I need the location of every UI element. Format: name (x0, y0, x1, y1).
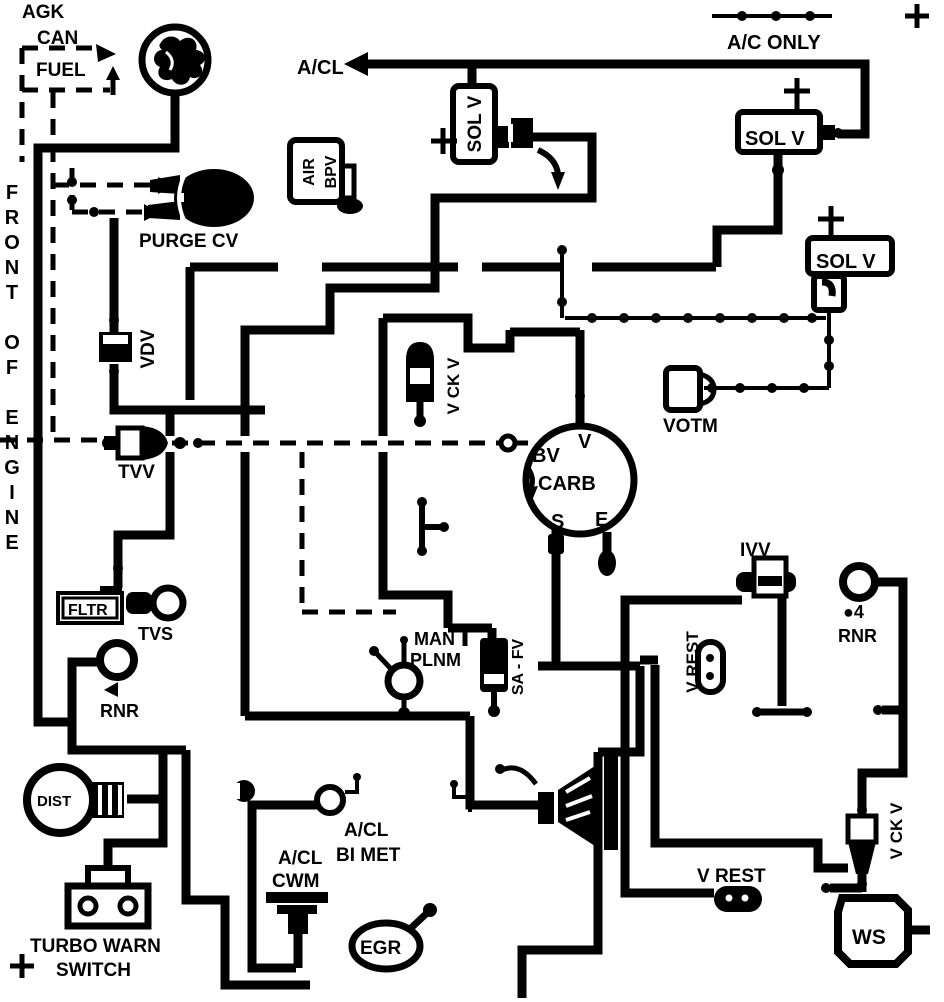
t-fitting-icon (422, 505, 441, 548)
turbo-warn-label: TURBO WARN (30, 936, 161, 957)
sol-v-ac-label: SOL V (745, 128, 805, 150)
acl-bimet-1-label: A/CL (344, 820, 389, 841)
acl-arrowhead-icon (344, 52, 368, 76)
sol-v-carb-label: SOL V (465, 95, 486, 152)
egr-icon (352, 903, 437, 969)
purge-cv-icon (148, 169, 254, 227)
bpv-label: BPV (323, 155, 340, 188)
v-ck-v-right-label: V CK V (887, 802, 906, 859)
switch-label: SWITCH (56, 960, 131, 981)
acl-cwm-1-label: A/CL (278, 848, 323, 869)
e-label: E (595, 509, 608, 531)
hose-right-feed (655, 665, 848, 868)
ws-label: WS (852, 926, 886, 949)
hose-s-zig (598, 666, 640, 752)
hose-solv2-stem (717, 152, 778, 267)
sol-v-votm (808, 238, 892, 310)
agk-label: AGK (22, 2, 65, 23)
rnr-4-bullet-label: ●4 (843, 602, 864, 622)
carb-icon (501, 426, 634, 576)
hose-rnr4-line (862, 582, 903, 814)
arrow-fuel-t (106, 66, 120, 80)
canister-icon (142, 27, 208, 93)
sa-fv-icon (480, 638, 508, 708)
tvs-label: TVS (138, 624, 173, 644)
plus-icon (818, 206, 844, 238)
plus-icon (784, 78, 810, 112)
beaded-hoses (562, 16, 832, 388)
egr-label: EGR (360, 938, 401, 959)
v-rest-bottom-label: V REST (697, 866, 766, 887)
hose-vck-loop (383, 318, 510, 348)
tvv-icon (104, 426, 168, 460)
sa-fv-label: SA - FV (510, 639, 527, 696)
rnr-right-label: RNR (838, 626, 877, 646)
carb-label: CARB (538, 473, 596, 495)
can-label: CAN (37, 28, 78, 49)
ivv-icon (736, 558, 796, 596)
air-label: AIR (301, 158, 318, 186)
rnr-left-icon (100, 643, 134, 697)
v-label: V (578, 431, 592, 453)
v-ck-v-left-label: V CK V (444, 357, 463, 414)
tvv-label: TVV (118, 462, 155, 483)
diagram-canvas: AGK CAN FUEL PURGE CV A/CL A/C ONLY SOL … (0, 0, 944, 1002)
rnr-right-icon (843, 566, 875, 598)
purge-cv-label: PURGE CV (139, 231, 239, 252)
sol-v-votm-label: SOL V (816, 251, 876, 273)
vacuum-diagram: FRONT OF ENGINE (0, 0, 944, 1002)
acl-label: A/CL (297, 57, 344, 79)
check-valve-left-icon (406, 342, 434, 418)
ivv-label: IVV (740, 540, 771, 561)
vdv-icon (99, 332, 132, 362)
bv-label: BV (532, 445, 560, 467)
hose-to-bell (470, 716, 540, 805)
acl-cwm-2-label: CWM (272, 871, 319, 892)
v-rest-bottom-icon (714, 886, 762, 912)
votm-label: VOTM (663, 416, 718, 437)
check-valve-right-icon (848, 816, 876, 874)
arrow-to-canister (96, 44, 116, 62)
plus-icon (905, 4, 929, 28)
plus-icon (10, 954, 34, 978)
plnm-label: PLNM (410, 650, 461, 670)
acl-bimet-icon (317, 787, 343, 813)
fltr-label: FLTR (68, 602, 108, 619)
acl-cwm-icon (266, 892, 328, 934)
vacuum-motor-icon (538, 756, 618, 850)
vdv-label: VDV (138, 329, 159, 368)
rnr-left-label: RNR (100, 701, 139, 721)
ac-only-label: A/C ONLY (727, 32, 821, 54)
s-label: S (551, 511, 564, 533)
turbo-warn-switch-icon (68, 868, 148, 926)
v-rest-mid-label: V REST (683, 631, 702, 693)
fuel-label: FUEL (36, 60, 86, 81)
man-label: MAN (414, 629, 455, 649)
hose-vck-down2 (383, 452, 448, 628)
dist-label: DIST (37, 793, 71, 810)
acl-bimet-2-label: BI MET (336, 845, 401, 866)
